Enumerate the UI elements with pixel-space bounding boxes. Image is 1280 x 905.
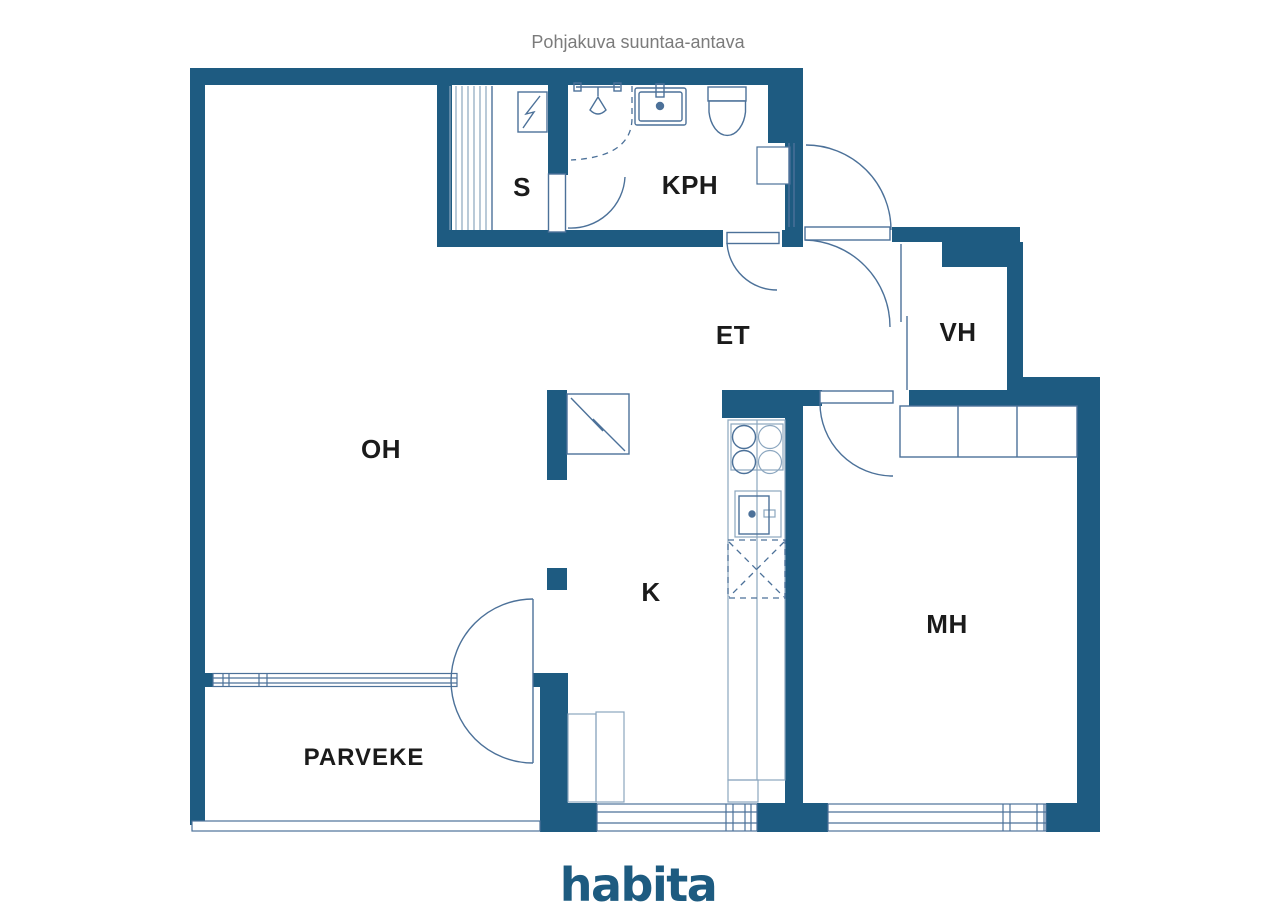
entry-door-arc-lower [805,240,890,327]
bedroom-window-band [828,804,1046,831]
wall-kph-et-left [437,230,723,247]
wall-balcony-left [190,687,205,825]
entry-door-arc-upper [806,145,891,230]
sauna-bench-lines [450,86,486,230]
room-label-living-room: OH [361,434,401,464]
bathroom-door-leaf [727,233,779,244]
plan-title: Pohjakuva suuntaa-antava [531,32,745,52]
wall-bottom-k-right [757,803,803,832]
shower-curtain-dashed [571,86,632,160]
room-label-bathroom: KPH [662,170,718,200]
balcony-railing [192,821,540,831]
room-label-closet: VH [939,317,976,347]
wall-entry-et [892,227,1020,242]
toilet-bowl [709,101,746,135]
room-label-kitchen: K [641,577,660,607]
dashed-elements [571,86,785,598]
room-label-balcony: PARVEKE [304,744,425,771]
wall-top [190,68,803,85]
wall-pillar [547,568,567,590]
kph-wall-niche [757,147,790,184]
room-label-hallway: ET [716,320,750,350]
kitchen-cabinet-2 [596,712,624,802]
balcony-window-band [213,674,457,687]
stove-burner-back-right [759,426,782,449]
closet-sliding-door [901,244,907,390]
toilet-tank [708,87,746,101]
room-label-sauna: S [513,172,531,202]
brand-logo: habita [560,858,717,905]
wall-mh-top-right [909,390,1085,406]
walls [190,68,1100,832]
washbasin-drain [657,103,664,110]
balcony-door-arc [451,599,533,763]
bedroom-door-arc [820,403,893,476]
floorplan-page: Pohjakuva suuntaa-antava S KPH ET VH OH … [0,0,1280,905]
wall-balcony-window-left-cap [190,673,213,687]
sauna-door-leaf [549,174,566,232]
bathroom-door-arc [727,243,777,290]
shower-head [590,97,606,114]
wall-panel-stub [547,390,567,480]
wall-mh-top-left [803,390,822,406]
sauna-door-arc [568,177,625,228]
stove-burner-back-left [733,426,756,449]
wall-left [190,68,205,687]
wall-sauna-kph [548,85,568,175]
wall-right-outer [1077,377,1100,832]
wall-bottom-k-left [555,803,597,832]
entry-door-leaf [805,227,890,240]
room-label-bedroom: MH [926,609,967,639]
floorplan-svg: Pohjakuva suuntaa-antava S KPH ET VH OH … [0,0,1280,905]
washbasin-tap [656,84,664,97]
wall-entry-top-chunk [768,68,803,143]
kitchen-sink-counter [735,491,781,537]
kitchen-sink-tap [749,511,755,517]
wall-bottom-mh-left [800,803,828,832]
bedroom-door-leaf [820,391,893,403]
bedroom-wardrobe [900,406,1077,457]
wall-vh-right [1007,242,1023,393]
wall-kitchen-mh [785,390,803,803]
kitchen-cabinet-3 [728,780,758,802]
kitchen-cabinet-1 [568,714,596,802]
bedroom-wardrobe-dividers [958,406,1017,457]
